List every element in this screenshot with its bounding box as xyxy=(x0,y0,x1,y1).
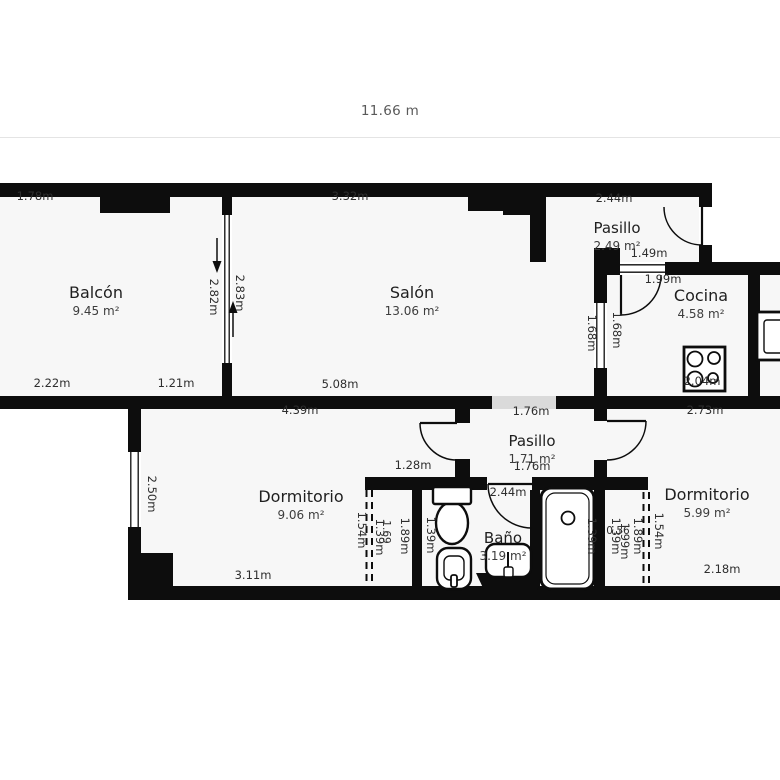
dimension-label: 1.89m xyxy=(631,518,645,555)
dimension-label: 2.44m xyxy=(490,485,527,499)
room-label-cocina: Cocina xyxy=(674,286,728,305)
dimension-label: 1.21m xyxy=(158,376,195,390)
wall-segment xyxy=(128,553,173,586)
kitchen-sink-icon xyxy=(764,320,780,353)
stove-burner xyxy=(708,352,720,364)
dimension-label: 1.68m xyxy=(585,315,599,352)
room-area-bano: 3.19 m² xyxy=(479,549,526,563)
bathtub-icon xyxy=(546,493,589,584)
floorplan-page: 11.66 m Balcón9.45 m²Salón13.06 m²Pasill… xyxy=(0,0,780,780)
dimension-label: 2.83m xyxy=(233,275,247,312)
bidet-icon xyxy=(451,575,457,587)
dimension-label: 3.32m xyxy=(332,189,369,203)
room-area-balcon: 9.45 m² xyxy=(72,304,119,318)
room-label-dormitorio-derecho: Dormitorio xyxy=(664,485,749,504)
room-area-dormitorio-derecho: 5.99 m² xyxy=(683,506,730,520)
dimension-label: 1.99m xyxy=(645,272,682,286)
wall-segment xyxy=(100,196,170,213)
dimension-label: 2.22m xyxy=(34,376,71,390)
dimension-label: 4.39m xyxy=(282,403,319,417)
dimension-label: 1.49m xyxy=(631,246,668,260)
dimension-label: 3.11m xyxy=(235,568,272,582)
room-area-salon: 13.06 m² xyxy=(385,304,440,318)
dimension-label: 2.50m xyxy=(145,476,159,513)
toilet-icon xyxy=(436,502,468,544)
room-area-cocina: 4.58 m² xyxy=(677,307,724,321)
dimension-label: 1.76m xyxy=(514,459,551,473)
dimension-label: 1.39m xyxy=(585,518,599,555)
dimension-label: 2.82m xyxy=(207,279,221,316)
dimension-label: 1.54m xyxy=(355,512,369,549)
dimension-label: 1.39m xyxy=(424,517,438,554)
room-label-bano: Baño xyxy=(484,529,522,547)
room-label-balcon: Balcón xyxy=(69,283,123,302)
wall-segment xyxy=(0,396,780,409)
dimension-label: 1.99m xyxy=(618,523,632,560)
wall-segment xyxy=(365,477,422,490)
room-area-dormitorio-izquierdo: 9.06 m² xyxy=(277,508,324,522)
dimension-label: 1.78m xyxy=(17,189,54,203)
window-frame xyxy=(128,452,141,527)
wall-segment xyxy=(594,460,607,477)
stove-burner xyxy=(688,352,703,367)
dimension-label: 1.89m xyxy=(398,518,412,555)
wall-segment xyxy=(455,409,470,423)
dimension-label: 2.73m xyxy=(687,403,724,417)
room-label-dormitorio-izquierdo: Dormitorio xyxy=(258,487,343,506)
washbasin-faucet xyxy=(504,567,513,577)
bathtub-drain xyxy=(562,512,575,525)
room-label-pasillo-superior: Pasillo xyxy=(593,219,640,237)
wall-segment xyxy=(412,490,422,586)
dimension-label: 1.54m xyxy=(652,513,666,550)
floorplan-drawing: Balcón9.45 m²Salón13.06 m²Pasillo2.49 m²… xyxy=(0,0,780,780)
room-label-salon: Salón xyxy=(390,283,434,302)
dimension-label: 2.18m xyxy=(704,562,741,576)
dimension-label: 1.76m xyxy=(513,404,550,418)
room-label-pasillo-inferior: Pasillo xyxy=(508,432,555,450)
dimension-label: 1.69 xyxy=(380,520,392,543)
wall-segment xyxy=(594,409,607,421)
dimension-label: 5.08m xyxy=(322,377,359,391)
dimension-label: 1.28m xyxy=(395,458,432,472)
wall-segment xyxy=(530,197,546,262)
dimension-label: 2.44m xyxy=(596,191,633,205)
toilet-icon xyxy=(433,487,471,504)
wall-segment xyxy=(455,459,470,477)
dimension-label: 1.68m xyxy=(610,312,624,349)
dimension-label: 2.04m xyxy=(684,374,721,388)
window-frame xyxy=(222,215,232,363)
